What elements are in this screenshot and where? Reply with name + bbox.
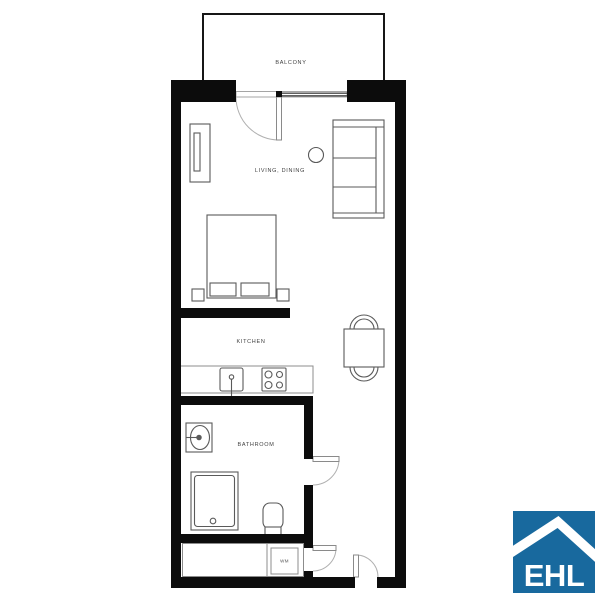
floor-plan-canvas: BALCONY LIVING, DINING KITCHEN BATHROOM … <box>0 0 600 600</box>
room-label-bathroom: BATHROOM <box>238 442 275 448</box>
wall-hall-middle <box>304 485 313 548</box>
double-bed <box>207 215 276 298</box>
wall-top-right-pillar <box>347 80 406 102</box>
wall-bath-closet <box>171 534 313 543</box>
balcony-door <box>236 97 282 140</box>
bathroom-door <box>313 457 339 486</box>
door-hinge-block <box>276 91 282 97</box>
balcony-outline <box>202 13 385 81</box>
wall-hall-upper <box>304 396 313 459</box>
dining-chair-bottom <box>350 367 378 381</box>
floor-plan-drawing <box>0 0 600 600</box>
wall-top-left-pillar <box>171 80 236 102</box>
room-label-kitchen: KITCHEN <box>236 339 265 345</box>
wall-left <box>171 80 181 588</box>
nightstand-right <box>277 289 289 301</box>
wall-bottom-left <box>171 577 355 588</box>
ehl-logo: EHL <box>513 511 595 593</box>
nightstand-left <box>192 289 204 301</box>
closet-door <box>313 546 336 572</box>
wardrobe-shelf <box>333 120 384 218</box>
wall-kitchen-bath <box>171 396 313 405</box>
entrance-door <box>354 555 379 577</box>
sideboard-cabinet <box>190 124 210 182</box>
shower <box>191 472 238 530</box>
pillow <box>210 283 236 296</box>
pendant-lamp <box>309 148 324 163</box>
dining-chair-top <box>350 315 378 329</box>
pillow <box>241 283 269 296</box>
wall-bottom-right <box>377 577 406 588</box>
kitchen-counter <box>179 366 313 393</box>
appliance-label-washing-machine: WM <box>280 559 289 564</box>
room-label-balcony: BALCONY <box>275 60 306 66</box>
bathroom-sink <box>186 423 212 452</box>
wall-bed-kitchen <box>171 308 290 318</box>
wall-right <box>395 80 406 588</box>
logo-text: EHL <box>513 559 595 593</box>
stove-four-burners <box>262 368 286 391</box>
room-label-living-dining: LIVING, DINING <box>255 168 305 174</box>
dining-table <box>344 329 384 367</box>
wall-hall-stub <box>304 571 313 588</box>
toilet <box>263 503 283 536</box>
